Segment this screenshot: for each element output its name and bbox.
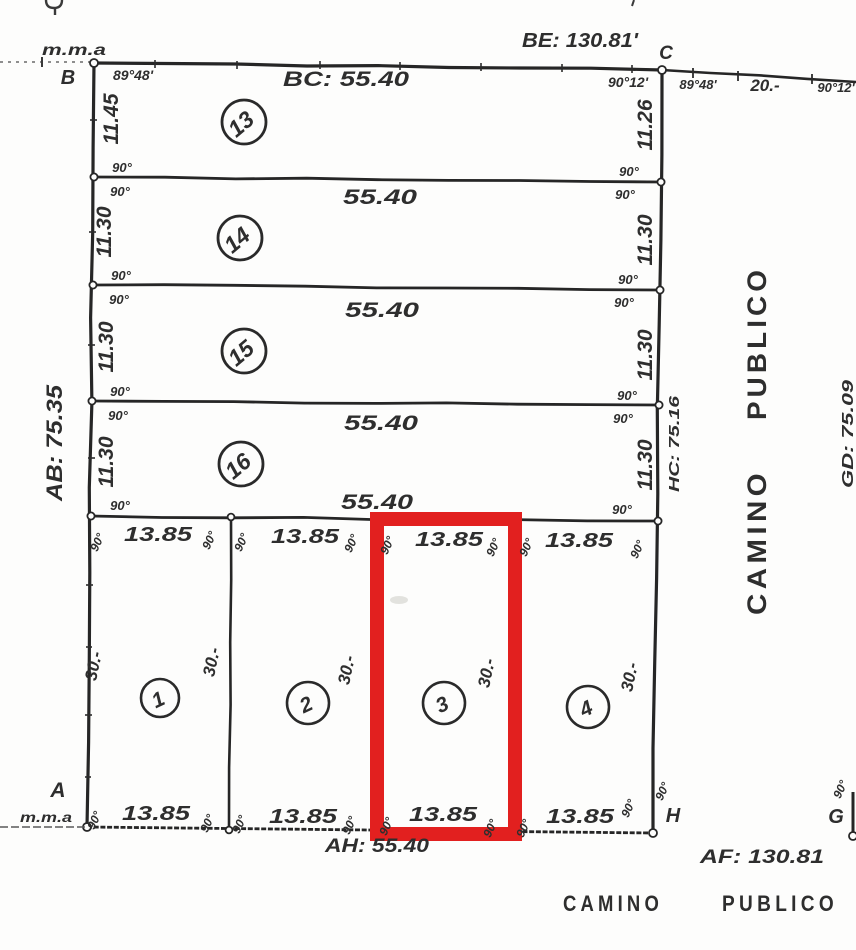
svg-text:BC: 55.40: BC: 55.40 — [283, 68, 409, 91]
svg-text:PUBLICO: PUBLICO — [722, 891, 838, 916]
svg-text:11.30: 11.30 — [93, 206, 116, 257]
svg-text:90°: 90° — [108, 408, 128, 423]
svg-text:55.40: 55.40 — [343, 186, 417, 209]
svg-text:11.26: 11.26 — [634, 99, 657, 150]
svg-text:13.85: 13.85 — [271, 526, 340, 548]
svg-text:G: G — [828, 806, 844, 828]
svg-text:13.85: 13.85 — [124, 524, 193, 546]
svg-text:13.85: 13.85 — [409, 804, 478, 826]
svg-text:90°: 90° — [110, 184, 130, 199]
svg-text:11.30: 11.30 — [634, 329, 657, 380]
svg-text:55.40: 55.40 — [344, 412, 418, 435]
svg-text:90°: 90° — [111, 268, 131, 283]
svg-text:90°: 90° — [112, 160, 132, 175]
svg-text:B: B — [61, 67, 75, 89]
svg-text:90°: 90° — [615, 187, 635, 202]
svg-text:13.85: 13.85 — [269, 806, 338, 828]
svg-text:13.85: 13.85 — [415, 529, 484, 551]
svg-text:90°: 90° — [613, 411, 633, 426]
svg-text:90°: 90° — [617, 388, 637, 403]
svg-text:11.30: 11.30 — [634, 439, 657, 490]
svg-text:AH: 55.40: AH: 55.40 — [324, 836, 430, 857]
svg-text:GD: 75.09: GD: 75.09 — [840, 380, 856, 488]
svg-text:11.45: 11.45 — [100, 93, 123, 144]
svg-text:AB: 75.35: AB: 75.35 — [42, 384, 67, 502]
svg-text:m.m.a: m.m.a — [42, 42, 106, 59]
svg-text:55.40: 55.40 — [341, 491, 413, 514]
svg-text:20.-: 20.- — [749, 76, 780, 95]
svg-text:A: A — [49, 779, 65, 802]
svg-text:55.40: 55.40 — [345, 299, 419, 322]
svg-text:13.85: 13.85 — [545, 530, 614, 552]
svg-text:HC: 75.16: HC: 75.16 — [666, 395, 683, 492]
svg-text:90°12': 90°12' — [608, 74, 649, 90]
svg-text:89°48': 89°48' — [679, 77, 717, 92]
svg-text:BE: 130.81': BE: 130.81' — [522, 30, 639, 52]
svg-text:CAMINO: CAMINO — [742, 469, 772, 615]
svg-text:90°: 90° — [619, 164, 639, 179]
svg-text:11.30: 11.30 — [95, 436, 118, 487]
svg-text:m.m.a: m.m.a — [20, 809, 72, 825]
svg-text:90°: 90° — [109, 292, 129, 307]
svg-text:90°: 90° — [618, 272, 638, 287]
svg-text:13.85: 13.85 — [122, 803, 191, 825]
svg-text:90°: 90° — [110, 498, 130, 513]
svg-text:C: C — [659, 43, 673, 64]
svg-text:89°48': 89°48' — [113, 67, 154, 83]
svg-text:H: H — [666, 805, 681, 827]
svg-text:90°12': 90°12' — [817, 80, 855, 95]
svg-text:13.85: 13.85 — [546, 806, 615, 828]
svg-text:90°: 90° — [110, 384, 130, 399]
svg-text:11.30: 11.30 — [634, 214, 657, 265]
svg-text:AF: 130.81: AF: 130.81 — [699, 847, 824, 868]
svg-text:11.30: 11.30 — [95, 321, 118, 372]
svg-text:CAMINO: CAMINO — [563, 891, 663, 916]
svg-text:90°: 90° — [614, 295, 634, 310]
svg-text:90°: 90° — [612, 502, 632, 517]
svg-text:PUBLICO: PUBLICO — [742, 266, 772, 420]
